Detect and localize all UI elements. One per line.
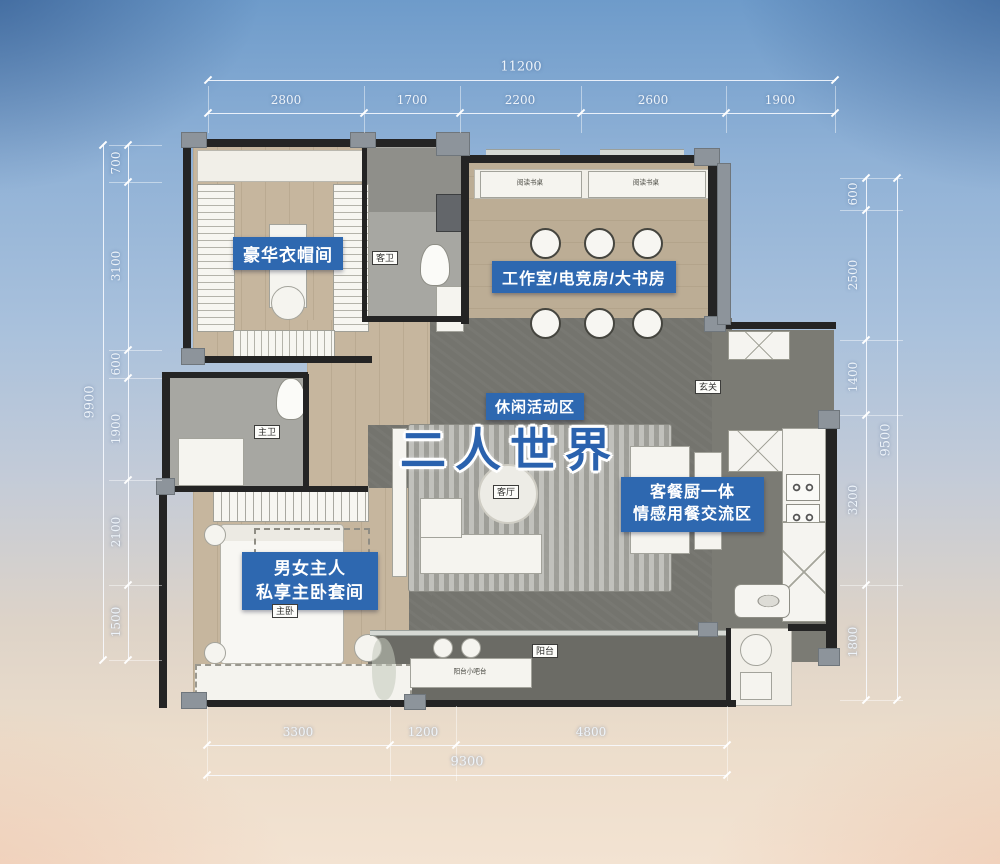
dim-top-seg-5: 1900 <box>765 93 796 107</box>
dim-tick-1 <box>831 76 839 84</box>
headline-title: 二人世界 <box>400 414 620 480</box>
dim-line-0 <box>208 80 836 81</box>
dim-ext-9 <box>109 378 162 379</box>
dim-ext-14 <box>840 210 903 211</box>
dim-left-seg-3: 600 <box>109 353 123 376</box>
dim-top-seg-2: 1700 <box>397 93 428 107</box>
tag-master-bath: 主卫 <box>254 425 280 439</box>
dim-ext-15 <box>840 340 903 341</box>
label-balcony-bar: 阳台小吧台 <box>454 667 487 676</box>
dim-right-seg-3: 1400 <box>846 362 860 393</box>
dim-line-2 <box>103 145 104 660</box>
dim-left-seg-6: 1500 <box>109 607 123 638</box>
dim-bottom-seg-2: 1200 <box>408 725 439 739</box>
dim-top-seg-4: 2600 <box>638 93 669 107</box>
tag-entry: 玄关 <box>695 380 721 394</box>
badge-cloakroom: 豪华衣帽间 <box>233 237 343 270</box>
dim-ext-12 <box>109 660 162 661</box>
dim-ext-6 <box>109 145 162 146</box>
dim-bottom-seg-3: 4800 <box>576 725 607 739</box>
dim-right-seg-5: 1800 <box>846 627 860 658</box>
dim-line-1 <box>208 113 836 114</box>
dim-tick-9 <box>99 656 107 664</box>
badge-master-line1: 男女主人 <box>256 557 364 581</box>
badge-dining-line2: 情感用餐交流区 <box>633 504 752 526</box>
dim-left-total: 9900 <box>83 385 98 418</box>
dim-right-total: 9500 <box>879 423 894 456</box>
tag-balcony: 阳台 <box>532 644 558 658</box>
badge-study: 工作室/电竞房/大书房 <box>492 261 676 293</box>
dim-left-seg-4: 1900 <box>109 414 123 445</box>
dim-line-5 <box>897 178 898 700</box>
dim-left-seg-2: 3100 <box>109 251 123 282</box>
dim-right-seg-4: 3200 <box>846 485 860 516</box>
dim-top-seg-1: 2800 <box>271 93 302 107</box>
tag-living: 客厅 <box>493 485 519 499</box>
badge-dining: 客餐厨一体 情感用餐交流区 <box>621 477 764 532</box>
dim-ext-17 <box>840 585 903 586</box>
dim-ext-11 <box>109 585 162 586</box>
dim-top-total: 11200 <box>500 60 541 75</box>
label-reading-desk-1: 阅读书桌 <box>517 178 543 187</box>
dim-ext-16 <box>840 415 903 416</box>
dim-right-seg-1: 600 <box>846 183 860 206</box>
tag-master-bed: 主卧 <box>272 604 298 618</box>
dim-ext-7 <box>109 182 162 183</box>
dim-ext-8 <box>109 350 162 351</box>
dim-bottom-seg-1: 3300 <box>283 725 314 739</box>
floorplan-scene: 11200 2800 1700 2200 2600 1900 9900 700 … <box>0 0 1000 864</box>
dim-left-seg-5: 2100 <box>109 517 123 548</box>
badge-master-line2: 私享主卧套间 <box>256 581 364 605</box>
dim-left-seg-1: 700 <box>109 152 123 175</box>
badge-master: 男女主人 私享主卧套间 <box>242 552 378 610</box>
dim-line-6 <box>207 745 727 746</box>
dim-right-seg-2: 2500 <box>846 260 860 291</box>
dim-bottom-total: 9300 <box>450 755 483 770</box>
label-reading-desk-2: 阅读书桌 <box>633 178 659 187</box>
tag-guest-bath: 客卫 <box>372 251 398 265</box>
badge-dining-line1: 客餐厨一体 <box>633 482 752 504</box>
dim-ext-10 <box>109 480 162 481</box>
dim-line-4 <box>866 178 867 700</box>
dim-line-7 <box>207 775 727 776</box>
dim-top-seg-3: 2200 <box>505 93 536 107</box>
